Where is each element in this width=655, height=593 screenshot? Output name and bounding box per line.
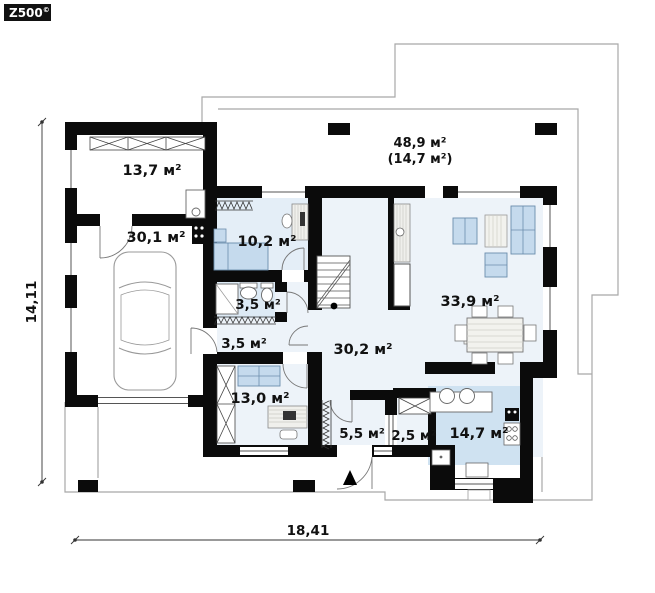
entrance-arrow-icon <box>343 470 357 485</box>
dim-width-label: 18,41 <box>287 523 330 539</box>
coffee-table-icon <box>485 253 507 277</box>
room-label-kitchen: 14,7 м² <box>449 426 508 442</box>
heater-unit-icon <box>192 222 206 244</box>
floor-plan-page: 13,7 м² 30,1 м² 10,2 м² 3,5 м² 3,5 м² 13… <box>0 0 655 593</box>
sofa-icon <box>511 206 535 254</box>
room-label-bedroom: 10,2 м² <box>237 234 296 250</box>
dimension-line-horizontal: 18,41 <box>71 523 544 544</box>
stairs <box>317 256 350 309</box>
logo-copyright: © <box>43 6 50 14</box>
room-label-hall: 30,2 м² <box>333 342 392 358</box>
room-label-bedroom2: 13,0 м² <box>230 391 289 407</box>
dim-height-label: 14,11 <box>24 281 40 324</box>
terrace-column <box>535 123 557 135</box>
storage-shelf-icon <box>90 137 205 150</box>
room-label-hallway-small: 3,5 м² <box>221 336 267 352</box>
dimension-line-vertical: 14,11 <box>24 118 46 486</box>
driveway-column <box>78 480 98 492</box>
room-label-entry: 5,5 м² <box>339 426 385 442</box>
car-icon <box>114 252 176 390</box>
logo: Z500© <box>4 4 51 21</box>
wardrobe-icon-closet <box>399 398 431 414</box>
room-label-living-room: 33,9 м² <box>440 294 499 310</box>
chimney-shaft <box>394 204 410 306</box>
terrace-column <box>328 123 350 135</box>
fridge-icon <box>432 450 450 465</box>
chair-icon <box>282 214 292 228</box>
chair-icon <box>280 430 297 439</box>
kitchen-sink-icon <box>430 389 492 413</box>
nightstand-icon <box>214 229 226 242</box>
rug-icon <box>485 215 507 247</box>
boiler-icon <box>186 190 205 218</box>
room-label-bathroom: 3,5 м² <box>235 297 281 313</box>
armchair-icon <box>453 218 477 244</box>
outside-step <box>468 490 490 500</box>
floor-plan-svg: 13,7 м² 30,1 м² 10,2 м² 3,5 м² 3,5 м² 13… <box>0 0 655 593</box>
terrace-area-label: 48,9 м² <box>394 136 447 151</box>
room-label-garage: 30,1 м² <box>126 230 185 246</box>
garage-door <box>98 396 188 405</box>
kitchen-table-icon <box>466 463 488 477</box>
room-label-storage: 13,7 м² <box>122 163 181 179</box>
porch-column <box>293 480 315 492</box>
room-label-wardrobe: 2,5 м² <box>391 428 437 444</box>
bed2-icon <box>238 366 280 386</box>
logo-brand: Z500 <box>9 6 43 20</box>
terrace-area-alt-label: (14,7 м²) <box>388 152 453 167</box>
